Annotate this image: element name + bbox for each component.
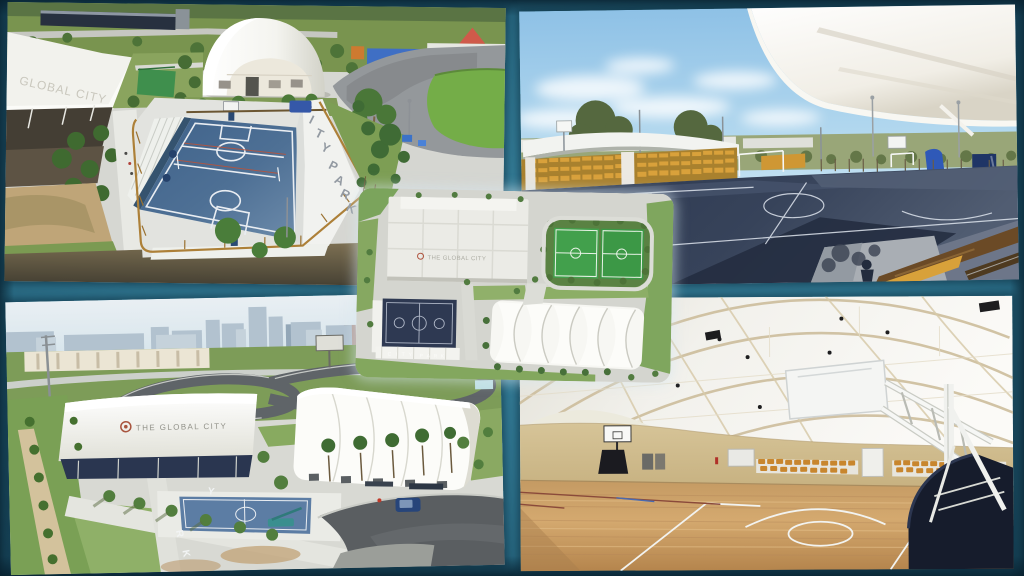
svg-text:THE GLOBAL CITY: THE GLOBAL CITY [136,422,228,433]
svg-text:T: T [402,352,405,358]
svg-text:C: C [388,352,392,358]
svg-text:I: I [396,352,398,358]
svg-text:THE GLOBAL CITY: THE GLOBAL CITY [427,255,486,262]
svg-text:R: R [434,353,438,359]
